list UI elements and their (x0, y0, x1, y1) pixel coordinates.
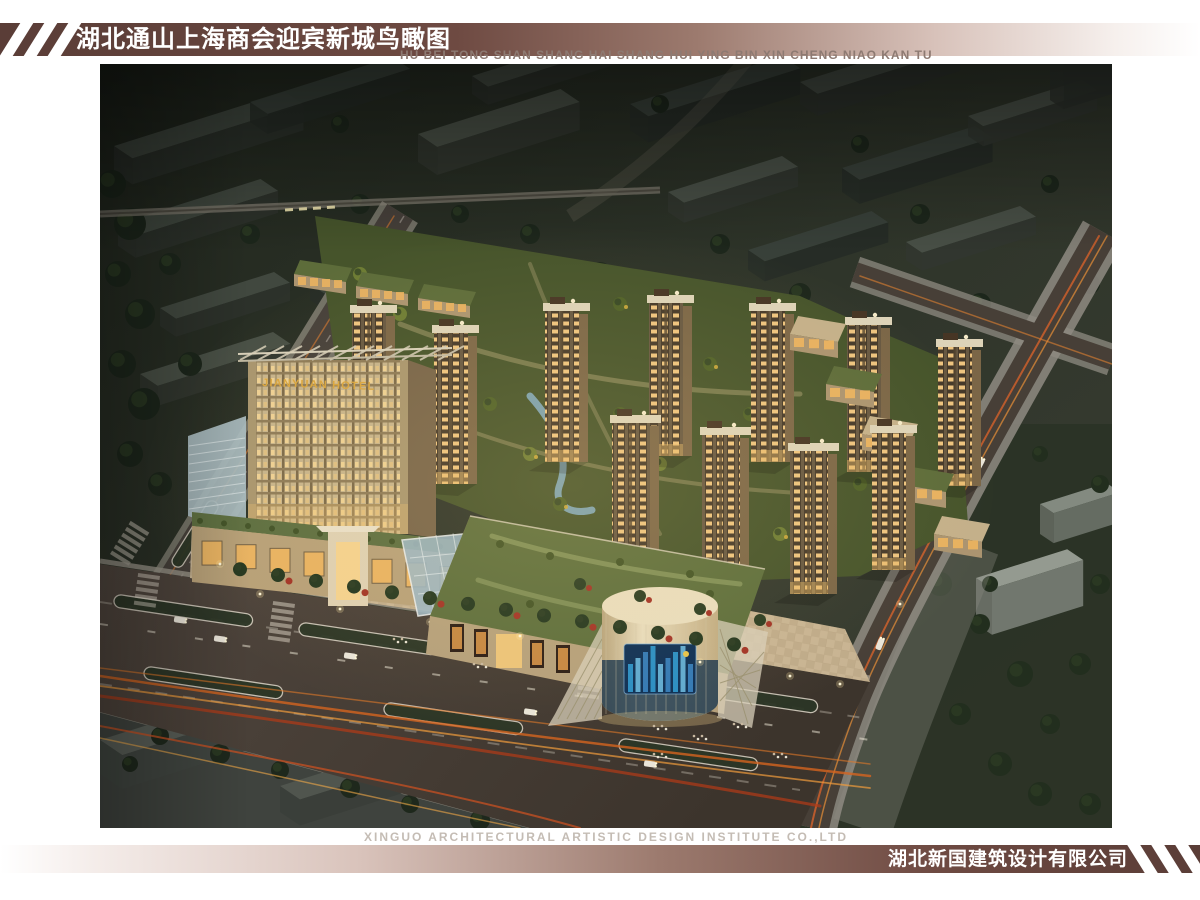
aerial-render: JIANYUAN HOTEL (100, 64, 1112, 828)
page-subtitle-pinyin: HU BEI TONG SHAN SHANG HAI SHANG HUI YIN… (400, 48, 906, 62)
presentation-board: 湖北通山上海商会迎宾新城鸟瞰图 HU BEI TONG SHAN SHANG H… (0, 0, 1200, 900)
render-image: JIANYUAN HOTEL (100, 64, 1112, 828)
page-title: 湖北通山上海商会迎宾新城鸟瞰图 (76, 23, 451, 56)
design-institute-credit: XINGUO ARCHITECTURAL ARTISTIC DESIGN INS… (100, 830, 1112, 844)
company-name: 湖北新国建筑设计有限公司 (888, 845, 1128, 873)
